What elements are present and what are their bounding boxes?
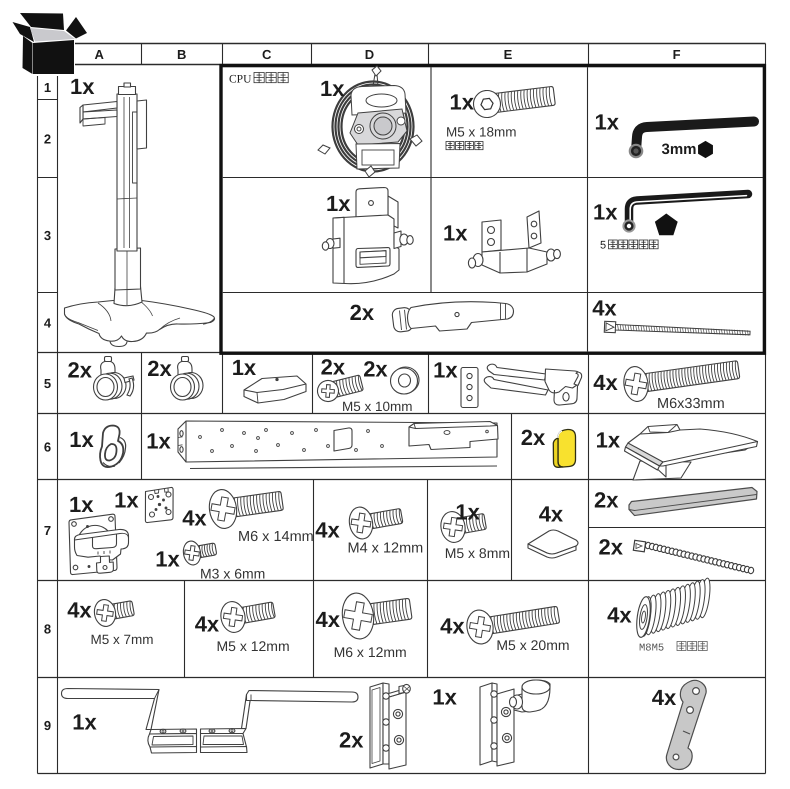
svg-text:4x: 4x xyxy=(67,597,92,622)
svg-text:A: A xyxy=(95,47,105,62)
svg-text:4x: 4x xyxy=(316,607,341,632)
svg-text:M5 x 7mm: M5 x 7mm xyxy=(91,632,154,647)
svg-text:4x: 4x xyxy=(539,501,564,526)
svg-text:1x: 1x xyxy=(450,90,475,115)
svg-text:2x: 2x xyxy=(321,355,346,380)
svg-text:7: 7 xyxy=(44,523,51,538)
svg-text:F: F xyxy=(673,47,681,62)
svg-text:4x: 4x xyxy=(607,603,632,628)
svg-text:8: 8 xyxy=(44,621,51,636)
svg-text:1x: 1x xyxy=(455,500,480,525)
svg-text:M6 x 14mm: M6 x 14mm xyxy=(238,529,314,545)
svg-text:D: D xyxy=(365,47,374,62)
svg-text:3: 3 xyxy=(44,228,51,243)
svg-text:1x: 1x xyxy=(155,547,180,572)
svg-text:CPU: CPU xyxy=(229,74,252,86)
svg-text:4x: 4x xyxy=(195,611,220,636)
svg-text:1x: 1x xyxy=(72,709,97,734)
svg-text:E: E xyxy=(504,47,513,62)
svg-text:5: 5 xyxy=(44,376,51,391)
svg-text:2x: 2x xyxy=(521,425,546,450)
svg-text:M5 x 8mm: M5 x 8mm xyxy=(445,545,510,561)
svg-text:2x: 2x xyxy=(339,728,364,753)
svg-text:C: C xyxy=(262,47,272,62)
svg-text:1x: 1x xyxy=(69,427,94,452)
svg-text:1x: 1x xyxy=(443,221,468,246)
svg-text:M5 x 12mm: M5 x 12mm xyxy=(217,638,290,654)
svg-text:2x: 2x xyxy=(594,488,619,513)
svg-text:1x: 1x xyxy=(114,488,139,513)
svg-text:4x: 4x xyxy=(652,685,677,710)
svg-text:M4 x 12mm: M4 x 12mm xyxy=(348,541,424,557)
svg-text:1x: 1x xyxy=(69,492,94,517)
svg-text:1: 1 xyxy=(44,80,51,95)
svg-text:2x: 2x xyxy=(363,357,388,382)
svg-text:M5 x 20mm: M5 x 20mm xyxy=(496,637,569,653)
svg-text:6: 6 xyxy=(44,439,51,454)
svg-text:2x: 2x xyxy=(599,534,624,559)
svg-text:M6x33mm: M6x33mm xyxy=(657,396,725,412)
svg-text:1x: 1x xyxy=(232,355,257,380)
svg-text:M5 x 18mm: M5 x 18mm xyxy=(446,125,517,140)
svg-text:9: 9 xyxy=(44,718,51,733)
svg-text:B: B xyxy=(177,47,186,62)
svg-text:2: 2 xyxy=(44,131,51,146)
svg-text:1x: 1x xyxy=(595,110,620,135)
svg-text:3mm: 3mm xyxy=(662,141,697,158)
svg-text:4x: 4x xyxy=(592,296,617,321)
svg-text:2x: 2x xyxy=(147,356,172,381)
svg-text:4x: 4x xyxy=(593,370,618,395)
svg-text:1x: 1x xyxy=(596,428,621,453)
svg-text:M3 x 6mm: M3 x 6mm xyxy=(200,566,265,582)
svg-text:M5 x 10mm: M5 x 10mm xyxy=(342,399,413,414)
svg-text:1x: 1x xyxy=(432,685,457,710)
svg-text:2x: 2x xyxy=(68,358,93,383)
svg-text:4x: 4x xyxy=(440,613,465,638)
svg-text:M6 x 12mm: M6 x 12mm xyxy=(334,644,407,660)
svg-text:M8M5: M8M5 xyxy=(639,643,664,655)
svg-text:4x: 4x xyxy=(315,517,340,542)
svg-text:1x: 1x xyxy=(433,358,458,383)
svg-text:2x: 2x xyxy=(350,300,375,325)
svg-text:1x: 1x xyxy=(70,74,95,99)
svg-text:4: 4 xyxy=(44,315,52,330)
svg-text:5: 5 xyxy=(600,240,606,252)
svg-text:1x: 1x xyxy=(146,429,171,454)
svg-text:1x: 1x xyxy=(326,191,351,216)
svg-text:1x: 1x xyxy=(593,200,618,225)
svg-text:4x: 4x xyxy=(182,505,207,530)
svg-text:1x: 1x xyxy=(320,76,345,101)
